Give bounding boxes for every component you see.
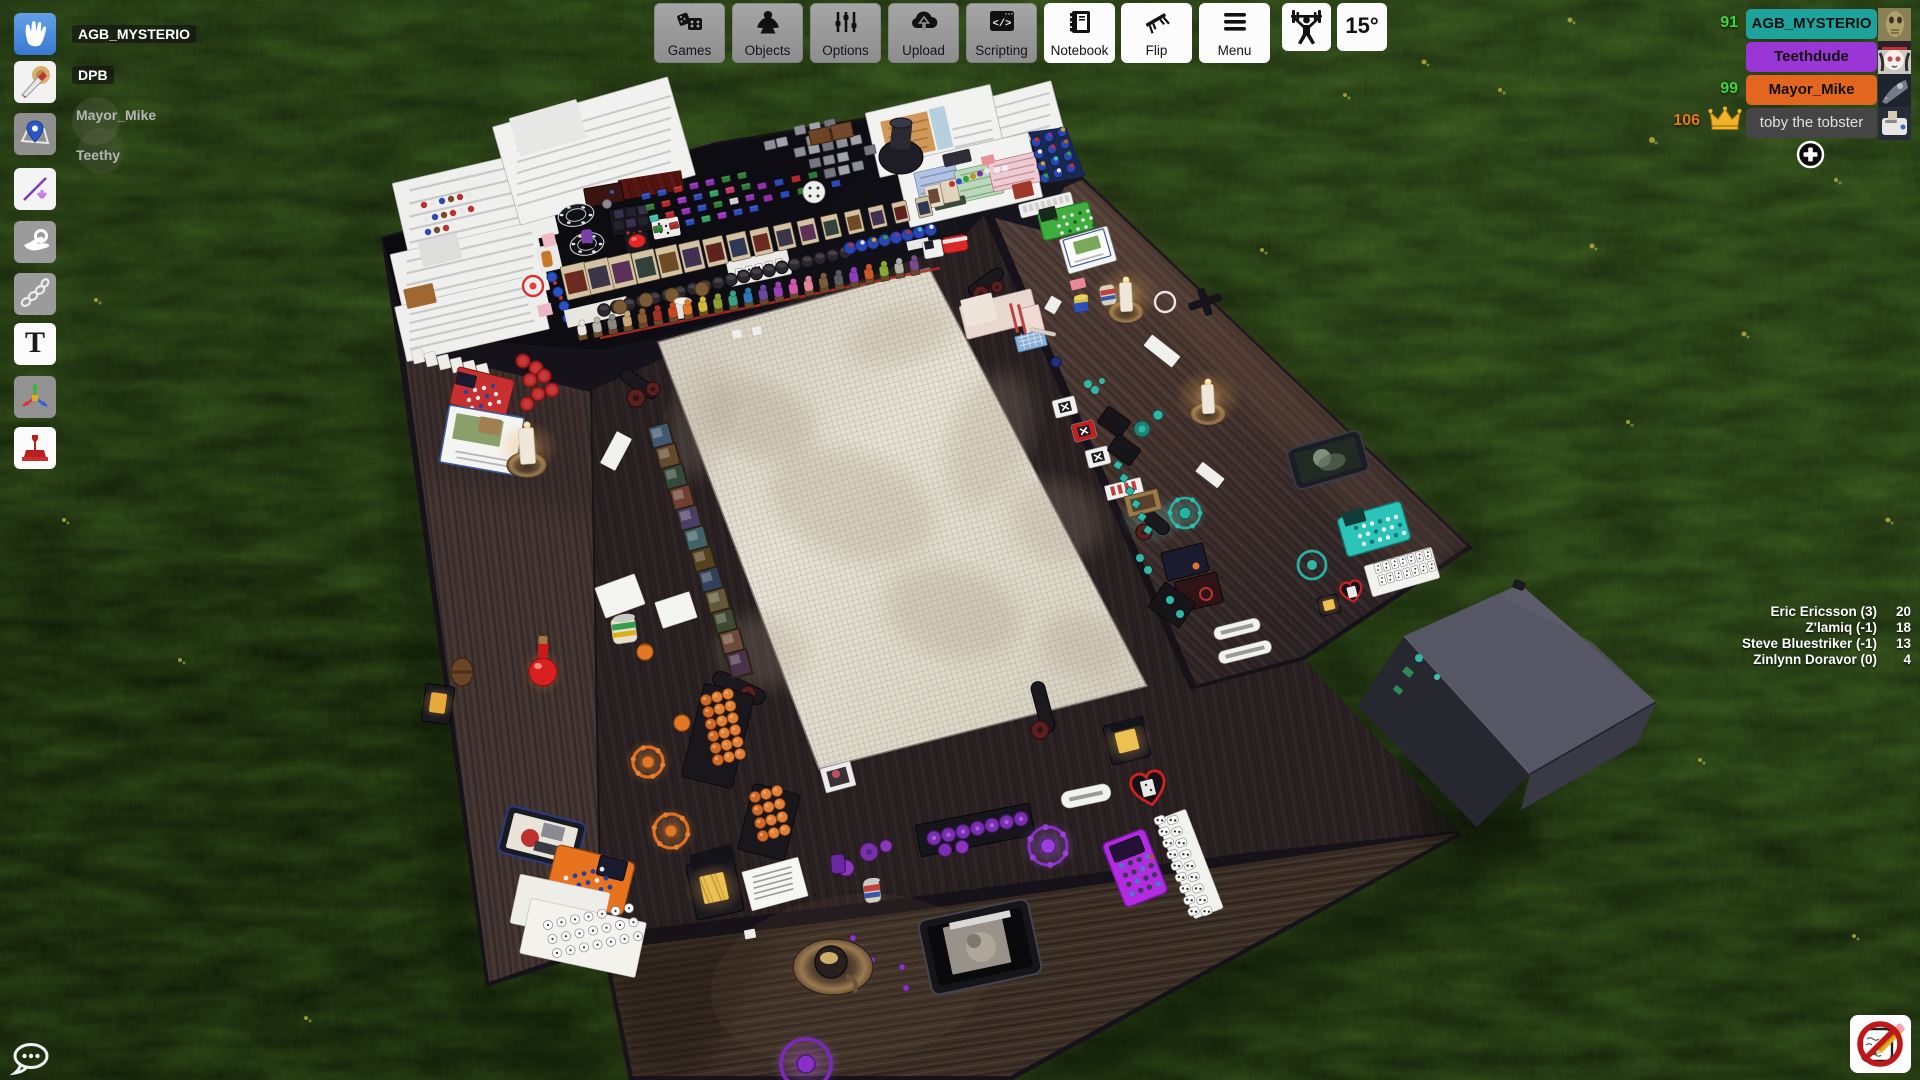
svg-text:</>: </> <box>992 18 1011 30</box>
